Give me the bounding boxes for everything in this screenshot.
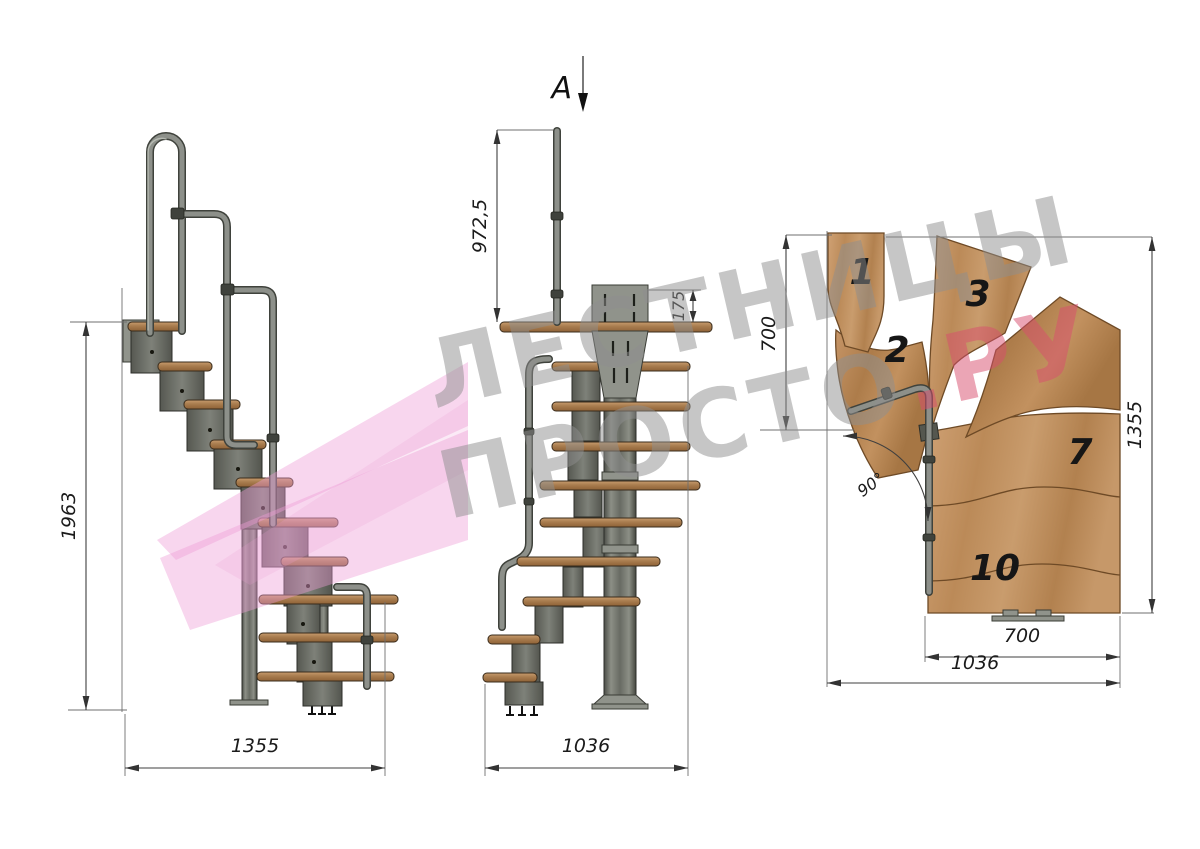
section-arrow: A xyxy=(549,56,588,112)
front-width-label: 1036 xyxy=(562,735,610,757)
technical-drawing-page: 1963 1355 A xyxy=(0,0,1200,849)
side-height-label: 1963 xyxy=(58,492,80,540)
tread-number-10: 10 xyxy=(970,548,1020,589)
section-label: A xyxy=(549,71,572,106)
column-foot xyxy=(594,695,646,704)
section-arrow-icon xyxy=(578,93,588,112)
column-joint xyxy=(602,545,638,553)
rail-height-label: 972,5 xyxy=(469,199,491,253)
plan-tread-width-label: 700 xyxy=(1004,625,1040,647)
tread-number-7: 7 xyxy=(1067,432,1092,473)
plan-right-height-label: 1355 xyxy=(1124,401,1146,449)
plan-total-width-label: 1036 xyxy=(951,652,999,674)
front-anchor-bolts xyxy=(506,706,538,715)
dim-side-height: 1963 xyxy=(58,322,127,710)
dim-rail-height: 972,5 xyxy=(469,130,553,322)
side-width-label: 1355 xyxy=(231,735,279,757)
staircase-drawing: 1963 1355 A xyxy=(0,0,1200,849)
